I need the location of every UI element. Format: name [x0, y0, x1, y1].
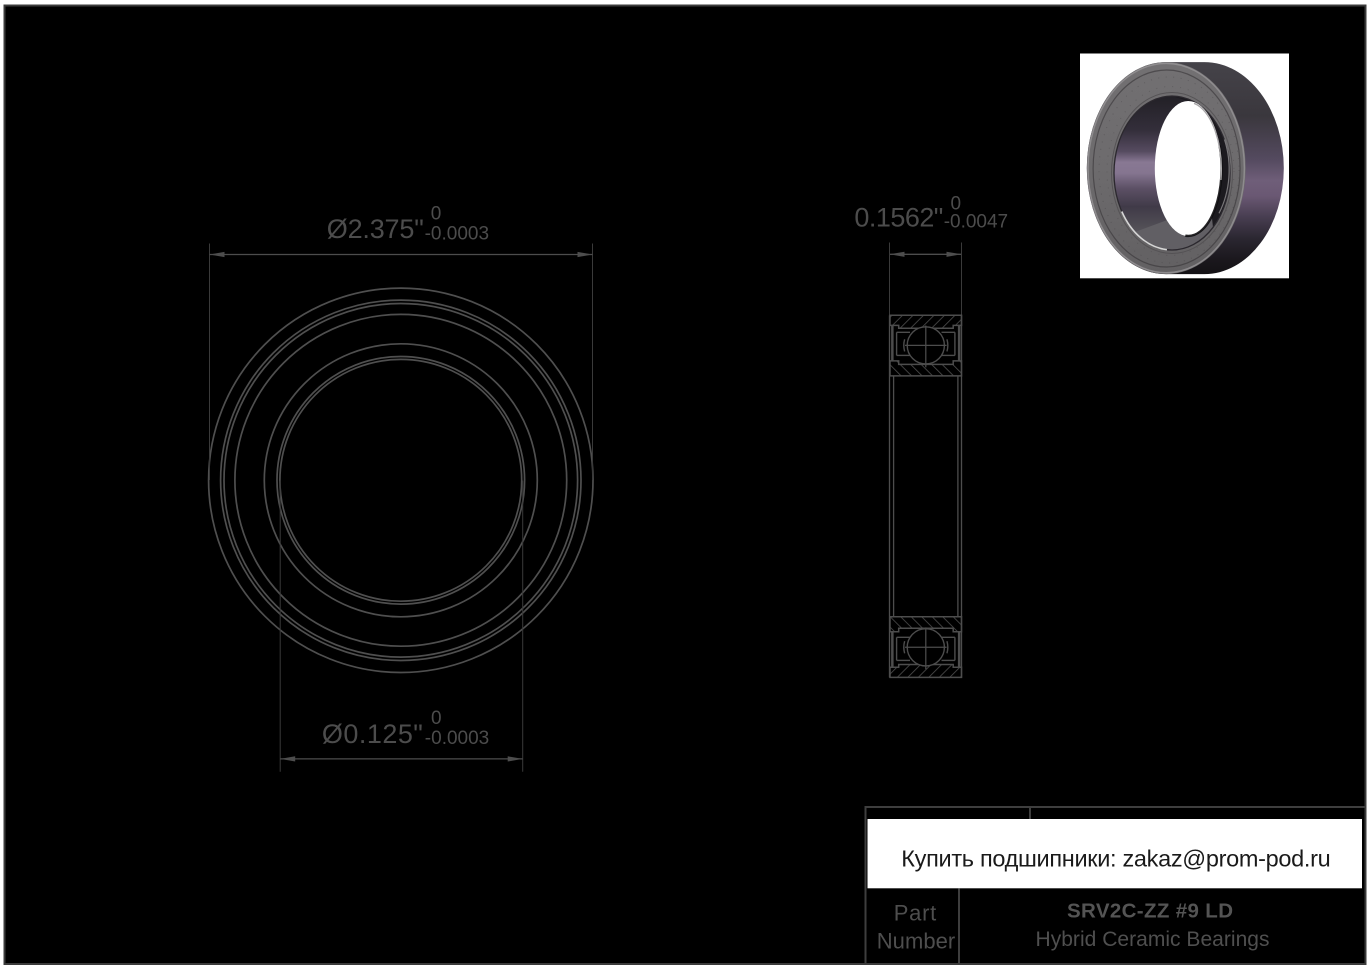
- svg-text:0: 0: [431, 204, 442, 225]
- svg-text:Ø0.125": Ø0.125": [322, 719, 423, 749]
- svg-text:-0.0003: -0.0003: [425, 728, 489, 749]
- svg-text:0: 0: [431, 708, 442, 729]
- svg-text:-0.0003: -0.0003: [425, 224, 489, 245]
- svg-text:SRV2C-ZZ #9 LD: SRV2C-ZZ #9 LD: [1067, 900, 1233, 923]
- svg-text:0.1562": 0.1562": [854, 203, 943, 233]
- svg-text:-0.0047: -0.0047: [944, 212, 1008, 233]
- svg-text:Ø2.375": Ø2.375": [327, 214, 424, 244]
- svg-text:Part: Part: [894, 900, 936, 925]
- svg-text:Hybrid Ceramic Bearings: Hybrid Ceramic Bearings: [1036, 928, 1270, 951]
- svg-text:Number: Number: [877, 928, 956, 953]
- svg-text:Купить подшипники: zakaz@prom-: Купить подшипники: zakaz@prom-pod.ru: [901, 845, 1330, 871]
